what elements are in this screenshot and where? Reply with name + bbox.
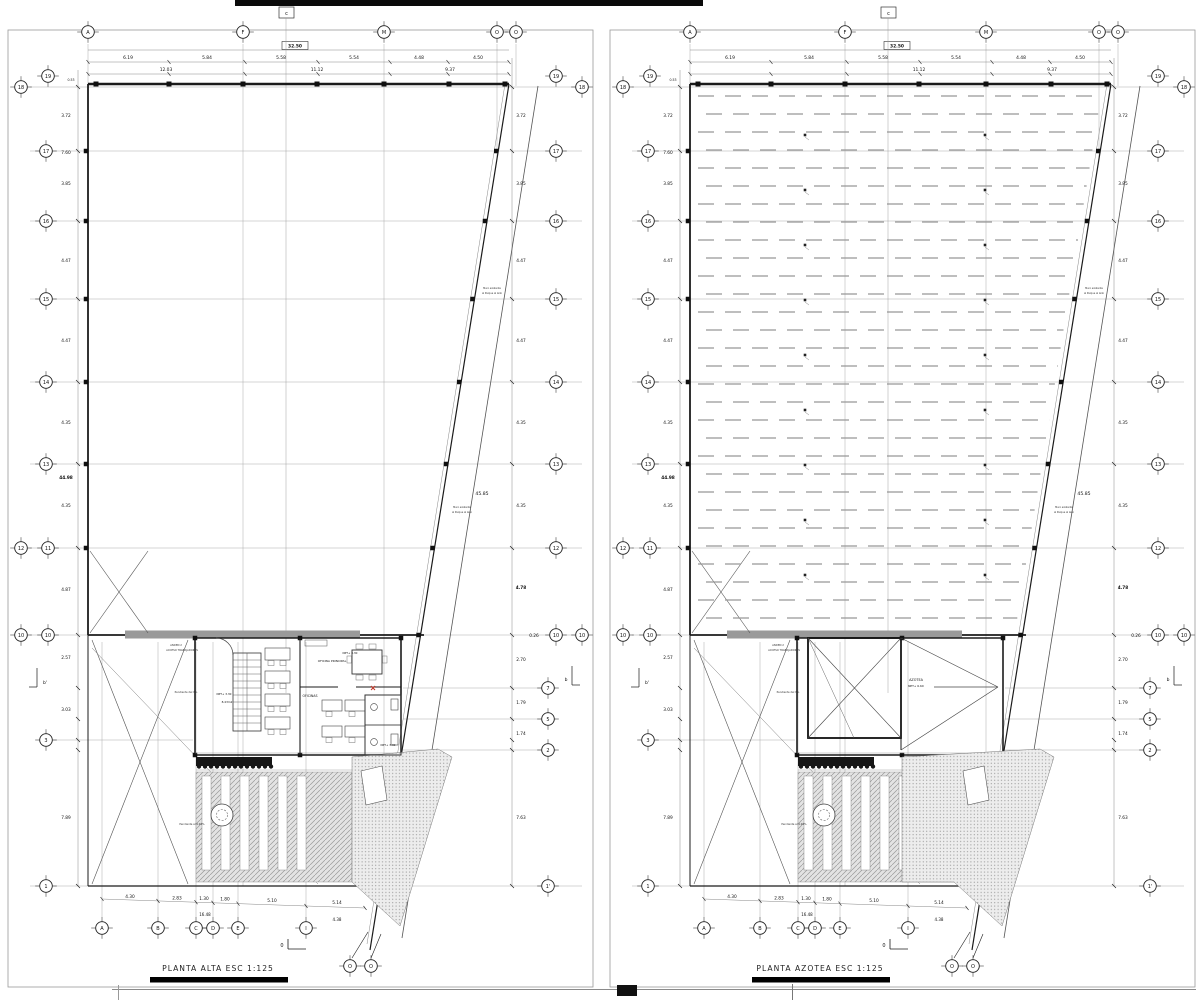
svg-text:13: 13 — [553, 462, 559, 468]
svg-text:A: A — [688, 30, 692, 36]
svg-text:19: 19 — [647, 74, 653, 80]
svg-text:13: 13 — [1155, 462, 1161, 468]
svg-text:M: M — [382, 30, 386, 36]
svg-text:OFICINAS: OFICINAS — [302, 694, 317, 698]
svg-text:9.37: 9.37 — [445, 67, 455, 73]
svg-text:5.10: 5.10 — [869, 898, 879, 904]
svg-text:4.47: 4.47 — [61, 338, 71, 344]
svg-text:al Parque al lado: al Parque al lado — [482, 292, 502, 295]
svg-text:3.72: 3.72 — [1118, 113, 1128, 119]
svg-text:7.60: 7.60 — [663, 150, 673, 156]
svg-text:44.98: 44.98 — [661, 475, 675, 481]
svg-text:3.72: 3.72 — [61, 113, 71, 119]
svg-text:B: B — [156, 926, 160, 932]
sheet-planta-alta: 32.506.195.845.585.544.484.5012.0311.129… — [0, 0, 600, 1000]
svg-text:1.80: 1.80 — [220, 897, 230, 903]
svg-text:4.35: 4.35 — [61, 503, 71, 509]
svg-text:11.12: 11.12 — [311, 67, 324, 73]
svg-text:10: 10 — [45, 633, 51, 639]
svg-text:5.14: 5.14 — [332, 900, 342, 906]
svg-text:15: 15 — [1155, 297, 1161, 303]
svg-text:O: O — [495, 30, 499, 36]
drawing-layers: 32.506.195.845.585.544.484.5012.0311.129… — [8, 7, 593, 987]
svg-text:2: 2 — [546, 748, 549, 754]
svg-text:15: 15 — [553, 297, 559, 303]
svg-text:12: 12 — [553, 546, 559, 552]
svg-text:3.85: 3.85 — [61, 181, 71, 187]
svg-text:4.47: 4.47 — [516, 338, 526, 344]
svg-text:1.74: 1.74 — [516, 731, 526, 737]
svg-text:4.47: 4.47 — [1118, 338, 1128, 344]
svg-text:6.19: 6.19 — [123, 55, 133, 61]
svg-text:4.35: 4.35 — [516, 420, 526, 426]
svg-text:13: 13 — [43, 462, 49, 468]
svg-text:14: 14 — [645, 380, 651, 386]
svg-text:16.48: 16.48 — [199, 912, 211, 917]
svg-text:C: C — [796, 926, 800, 932]
svg-text:3.03: 3.03 — [663, 707, 673, 713]
svg-text:4.47: 4.47 — [1118, 258, 1128, 264]
svg-text:15: 15 — [43, 297, 49, 303]
svg-text:OFICINA PRINCIPAL: OFICINA PRINCIPAL — [318, 659, 347, 663]
plan-drawing-planta-alta: 32.506.195.845.585.544.484.5012.0311.129… — [0, 0, 600, 1000]
svg-text:B: B — [758, 926, 762, 932]
svg-text:4.38: 4.38 — [935, 917, 944, 922]
svg-text:14: 14 — [1155, 380, 1161, 386]
svg-text:4.47: 4.47 — [516, 258, 526, 264]
svg-text:11: 11 — [45, 546, 51, 552]
svg-text:3.85: 3.85 — [663, 181, 673, 187]
svg-text:b': b' — [43, 680, 47, 686]
svg-text:32.50: 32.50 — [890, 44, 904, 50]
svg-text:13: 13 — [645, 462, 651, 468]
svg-text:2.57: 2.57 — [61, 655, 71, 661]
svg-text:5.58: 5.58 — [276, 55, 286, 61]
svg-text:I: I — [907, 926, 908, 932]
plan-drawing-planta-azotea: 32.506.195.845.585.544.484.5011.129.370.… — [602, 0, 1200, 1000]
svg-text:7.89: 7.89 — [663, 815, 673, 821]
bottom-left-tick — [118, 985, 119, 1000]
svg-text:2.70: 2.70 — [1118, 657, 1128, 663]
svg-text:12: 12 — [620, 546, 626, 552]
svg-text:10: 10 — [579, 633, 585, 639]
svg-text:7.63: 7.63 — [516, 815, 526, 821]
svg-text:9.37: 9.37 — [1047, 67, 1057, 73]
svg-text:6.19: 6.19 — [725, 55, 735, 61]
svg-text:ACCESO TRABAJADORES: ACCESO TRABAJADORES — [768, 648, 800, 652]
svg-text:5.84: 5.84 — [804, 55, 814, 61]
svg-text:A: A — [100, 926, 104, 932]
drawing-layers: 32.506.195.845.585.544.484.5011.129.370.… — [610, 7, 1195, 987]
bottom-edge-line — [112, 989, 1196, 990]
svg-text:b: b — [565, 677, 568, 683]
sheet-title: PLANTA AZOTEA ESC 1:125 — [756, 964, 883, 973]
svg-text:O: O — [1097, 30, 1101, 36]
svg-text:18: 18 — [1181, 85, 1187, 91]
svg-text:1': 1' — [546, 884, 551, 890]
svg-text:c: c — [285, 11, 288, 17]
sheet-planta-azotea: 32.506.195.845.585.544.484.5011.129.370.… — [602, 0, 1200, 1000]
svg-text:0.26: 0.26 — [529, 633, 539, 639]
svg-text:O: O — [514, 30, 518, 36]
bottom-edge-tick — [792, 984, 793, 1000]
svg-text:4.50: 4.50 — [473, 55, 483, 61]
svg-text:4.35: 4.35 — [61, 420, 71, 426]
svg-text:4.35: 4.35 — [516, 503, 526, 509]
svg-text:O: O — [348, 964, 352, 970]
svg-text:5.58: 5.58 — [878, 55, 888, 61]
svg-text:al Parque al lado: al Parque al lado — [452, 511, 472, 514]
svg-text:Muro existente: Muro existente — [453, 506, 471, 509]
svg-text:11.12: 11.12 — [913, 67, 926, 73]
svg-text:4.47: 4.47 — [663, 338, 673, 344]
svg-text:Muro existente: Muro existente — [1055, 506, 1073, 509]
svg-text:1.30: 1.30 — [199, 896, 209, 902]
svg-text:NPT+ 6.60: NPT+ 6.60 — [908, 684, 924, 688]
svg-text:8.43m2: 8.43m2 — [222, 700, 233, 704]
svg-text:10: 10 — [647, 633, 653, 639]
svg-text:5: 5 — [546, 717, 549, 723]
svg-text:b': b' — [645, 680, 649, 686]
svg-text:M: M — [984, 30, 988, 36]
svg-text:16: 16 — [43, 219, 49, 225]
svg-text:1.30: 1.30 — [801, 896, 811, 902]
svg-text:Pendiente al 4.91%: Pendiente al 4.91% — [179, 822, 205, 826]
svg-text:3.72: 3.72 — [516, 113, 526, 119]
svg-text:2.83: 2.83 — [774, 895, 784, 901]
svg-text:1.79: 1.79 — [516, 700, 526, 706]
svg-text:O: O — [971, 964, 975, 970]
svg-text:17: 17 — [43, 149, 49, 155]
svg-text:2: 2 — [1148, 748, 1151, 754]
svg-text:10: 10 — [620, 633, 626, 639]
svg-text:16: 16 — [645, 219, 651, 225]
svg-text:2.83: 2.83 — [172, 895, 182, 901]
svg-text:4.35: 4.35 — [663, 420, 673, 426]
svg-text:18: 18 — [620, 85, 626, 91]
svg-text:4.48: 4.48 — [414, 55, 424, 61]
svg-text:A: A — [702, 926, 706, 932]
svg-text:1: 1 — [646, 884, 649, 890]
svg-text:17: 17 — [1155, 149, 1161, 155]
svg-text:D: D — [211, 926, 215, 932]
svg-text:4.78: 4.78 — [516, 585, 527, 591]
svg-text:10: 10 — [1181, 633, 1187, 639]
svg-text:0: 0 — [280, 943, 283, 949]
svg-text:4.30: 4.30 — [125, 894, 135, 900]
svg-text:17: 17 — [553, 149, 559, 155]
svg-text:O: O — [369, 964, 373, 970]
svg-text:7.63: 7.63 — [1118, 815, 1128, 821]
svg-text:1: 1 — [44, 884, 47, 890]
bottom-edge-square — [617, 985, 637, 996]
svg-text:ACCESO TRABAJADORES: ACCESO TRABAJADORES — [166, 648, 198, 652]
svg-text:0: 0 — [882, 943, 885, 949]
svg-text:ANDEN 2: ANDEN 2 — [170, 643, 182, 647]
svg-text:4.47: 4.47 — [663, 258, 673, 264]
svg-text:F: F — [844, 30, 847, 36]
svg-text:2.70: 2.70 — [516, 657, 526, 663]
svg-text:18: 18 — [18, 85, 24, 91]
svg-text:45.85: 45.85 — [1077, 491, 1090, 497]
svg-text:4.50: 4.50 — [1075, 55, 1085, 61]
svg-text:3.03: 3.03 — [61, 707, 71, 713]
top-edge-bar — [235, 0, 703, 6]
svg-text:17: 17 — [645, 149, 651, 155]
svg-text:0.26: 0.26 — [1131, 633, 1141, 639]
svg-text:7: 7 — [1148, 686, 1151, 692]
svg-text:4.35: 4.35 — [1118, 503, 1128, 509]
svg-text:7.60: 7.60 — [61, 150, 71, 156]
svg-text:16: 16 — [1155, 219, 1161, 225]
svg-text:I: I — [305, 926, 306, 932]
svg-text:E: E — [838, 926, 841, 932]
svg-text:5: 5 — [1148, 717, 1151, 723]
svg-text:E: E — [236, 926, 239, 932]
svg-text:Pendiente del 6%: Pendiente del 6% — [175, 690, 198, 694]
svg-text:0.53: 0.53 — [669, 78, 676, 82]
svg-text:D: D — [813, 926, 817, 932]
svg-text:45.85: 45.85 — [475, 491, 488, 497]
svg-text:4.35: 4.35 — [1118, 420, 1128, 426]
svg-text:Pendiente al 4.91%: Pendiente al 4.91% — [781, 822, 807, 826]
svg-text:0.53: 0.53 — [67, 78, 74, 82]
svg-text:5.54: 5.54 — [951, 55, 961, 61]
svg-text:7: 7 — [546, 686, 549, 692]
svg-text:15: 15 — [645, 297, 651, 303]
svg-text:1.79: 1.79 — [1118, 700, 1128, 706]
svg-text:3: 3 — [646, 738, 649, 744]
svg-text:O: O — [950, 964, 954, 970]
svg-text:32.50: 32.50 — [288, 44, 302, 50]
svg-text:5.10: 5.10 — [267, 898, 277, 904]
svg-text:al Parque al lado: al Parque al lado — [1084, 292, 1104, 295]
svg-text:al Parque al lado: al Parque al lado — [1054, 511, 1074, 514]
svg-text:16: 16 — [553, 219, 559, 225]
svg-text:2.57: 2.57 — [663, 655, 673, 661]
svg-text:19: 19 — [45, 74, 51, 80]
svg-text:4.38: 4.38 — [333, 917, 342, 922]
svg-text:Muro existente: Muro existente — [1085, 287, 1103, 290]
svg-text:3.72: 3.72 — [663, 113, 673, 119]
svg-text:Muro existente: Muro existente — [483, 287, 501, 290]
svg-text:12: 12 — [18, 546, 24, 552]
svg-text:10: 10 — [18, 633, 24, 639]
svg-text:19: 19 — [1155, 74, 1161, 80]
svg-text:14: 14 — [43, 380, 49, 386]
svg-text:4.35: 4.35 — [663, 503, 673, 509]
svg-text:5.14: 5.14 — [934, 900, 944, 906]
svg-text:c: c — [887, 11, 890, 17]
svg-text:AZOTEA: AZOTEA — [909, 678, 924, 682]
sheet-title: PLANTA ALTA ESC 1:125 — [162, 964, 274, 973]
svg-text:4.48: 4.48 — [1016, 55, 1026, 61]
svg-text:Pendiente del 6%: Pendiente del 6% — [777, 690, 800, 694]
svg-text:O: O — [1116, 30, 1120, 36]
svg-text:b: b — [1167, 677, 1170, 683]
svg-text:4.87: 4.87 — [61, 587, 71, 593]
svg-text:3.85: 3.85 — [1118, 181, 1128, 187]
svg-text:3: 3 — [44, 738, 47, 744]
svg-text:14: 14 — [553, 380, 559, 386]
svg-text:1.80: 1.80 — [822, 897, 832, 903]
svg-text:44.98: 44.98 — [59, 475, 73, 481]
svg-text:F: F — [242, 30, 245, 36]
svg-text:4.30: 4.30 — [727, 894, 737, 900]
svg-text:4.47: 4.47 — [61, 258, 71, 264]
svg-text:1.74: 1.74 — [1118, 731, 1128, 737]
svg-text:10: 10 — [553, 633, 559, 639]
svg-text:NPT+ 3.30: NPT+ 3.30 — [343, 651, 358, 655]
svg-text:5.84: 5.84 — [202, 55, 212, 61]
svg-text:A: A — [86, 30, 90, 36]
svg-text:5.54: 5.54 — [349, 55, 359, 61]
svg-text:16.48: 16.48 — [801, 912, 813, 917]
svg-text:C: C — [194, 926, 198, 932]
svg-text:ANDEN 2: ANDEN 2 — [772, 643, 784, 647]
svg-text:11: 11 — [647, 546, 653, 552]
svg-text:4.87: 4.87 — [663, 587, 673, 593]
svg-text:12: 12 — [1155, 546, 1161, 552]
svg-text:12.03: 12.03 — [160, 67, 173, 73]
svg-text:1': 1' — [1148, 884, 1153, 890]
svg-text:NPT+ 3.30: NPT+ 3.30 — [217, 692, 232, 696]
svg-text:NPT+ 3.30: NPT+ 3.30 — [381, 743, 396, 747]
drawing-canvas: { "page": {"background": "#ffffff", "ink… — [0, 0, 1200, 1000]
svg-text:4.78: 4.78 — [1118, 585, 1129, 591]
svg-text:18: 18 — [579, 85, 585, 91]
svg-text:19: 19 — [553, 74, 559, 80]
svg-text:3.85: 3.85 — [516, 181, 526, 187]
svg-text:10: 10 — [1155, 633, 1161, 639]
svg-text:7.89: 7.89 — [61, 815, 71, 821]
